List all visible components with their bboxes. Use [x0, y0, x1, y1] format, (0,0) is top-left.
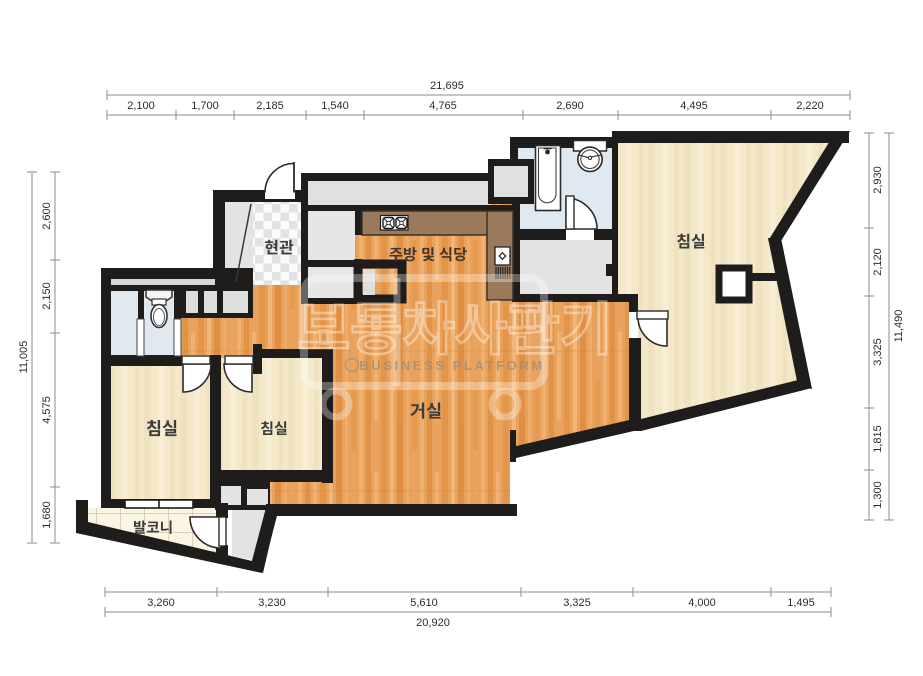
svg-text:BUSINESS PLATFORM: BUSINESS PLATFORM — [359, 358, 545, 373]
svg-text:2,120: 2,120 — [872, 248, 884, 276]
svg-text:3,260: 3,260 — [147, 597, 175, 609]
svg-text:2,600: 2,600 — [41, 202, 53, 230]
svg-text:4,765: 4,765 — [429, 100, 457, 112]
svg-text:1,300: 1,300 — [872, 481, 884, 509]
svg-text:21,695: 21,695 — [430, 80, 464, 92]
svg-text:2,100: 2,100 — [127, 100, 155, 112]
svg-text:4,000: 4,000 — [688, 597, 716, 609]
svg-text:11,490: 11,490 — [893, 310, 905, 343]
svg-text:4,575: 4,575 — [41, 396, 53, 424]
svg-text:1,815: 1,815 — [872, 425, 884, 453]
svg-text:3,325: 3,325 — [872, 338, 884, 366]
svg-text:1,680: 1,680 — [41, 501, 53, 529]
svg-text:1,700: 1,700 — [191, 100, 219, 112]
svg-text:3,230: 3,230 — [258, 597, 286, 609]
svg-text:5,610: 5,610 — [410, 597, 438, 609]
svg-text:1,540: 1,540 — [321, 100, 349, 112]
svg-text:11,005: 11,005 — [18, 341, 30, 374]
svg-text:4,495: 4,495 — [680, 100, 708, 112]
svg-text:2,220: 2,220 — [796, 100, 824, 112]
svg-text:20,920: 20,920 — [416, 617, 450, 629]
svg-text:2,150: 2,150 — [41, 282, 53, 310]
svg-text:3,325: 3,325 — [563, 597, 591, 609]
svg-text:2,690: 2,690 — [556, 100, 584, 112]
svg-text:1,495: 1,495 — [787, 597, 815, 609]
svg-text:2,930: 2,930 — [872, 166, 884, 194]
svg-text:2,185: 2,185 — [256, 100, 284, 112]
